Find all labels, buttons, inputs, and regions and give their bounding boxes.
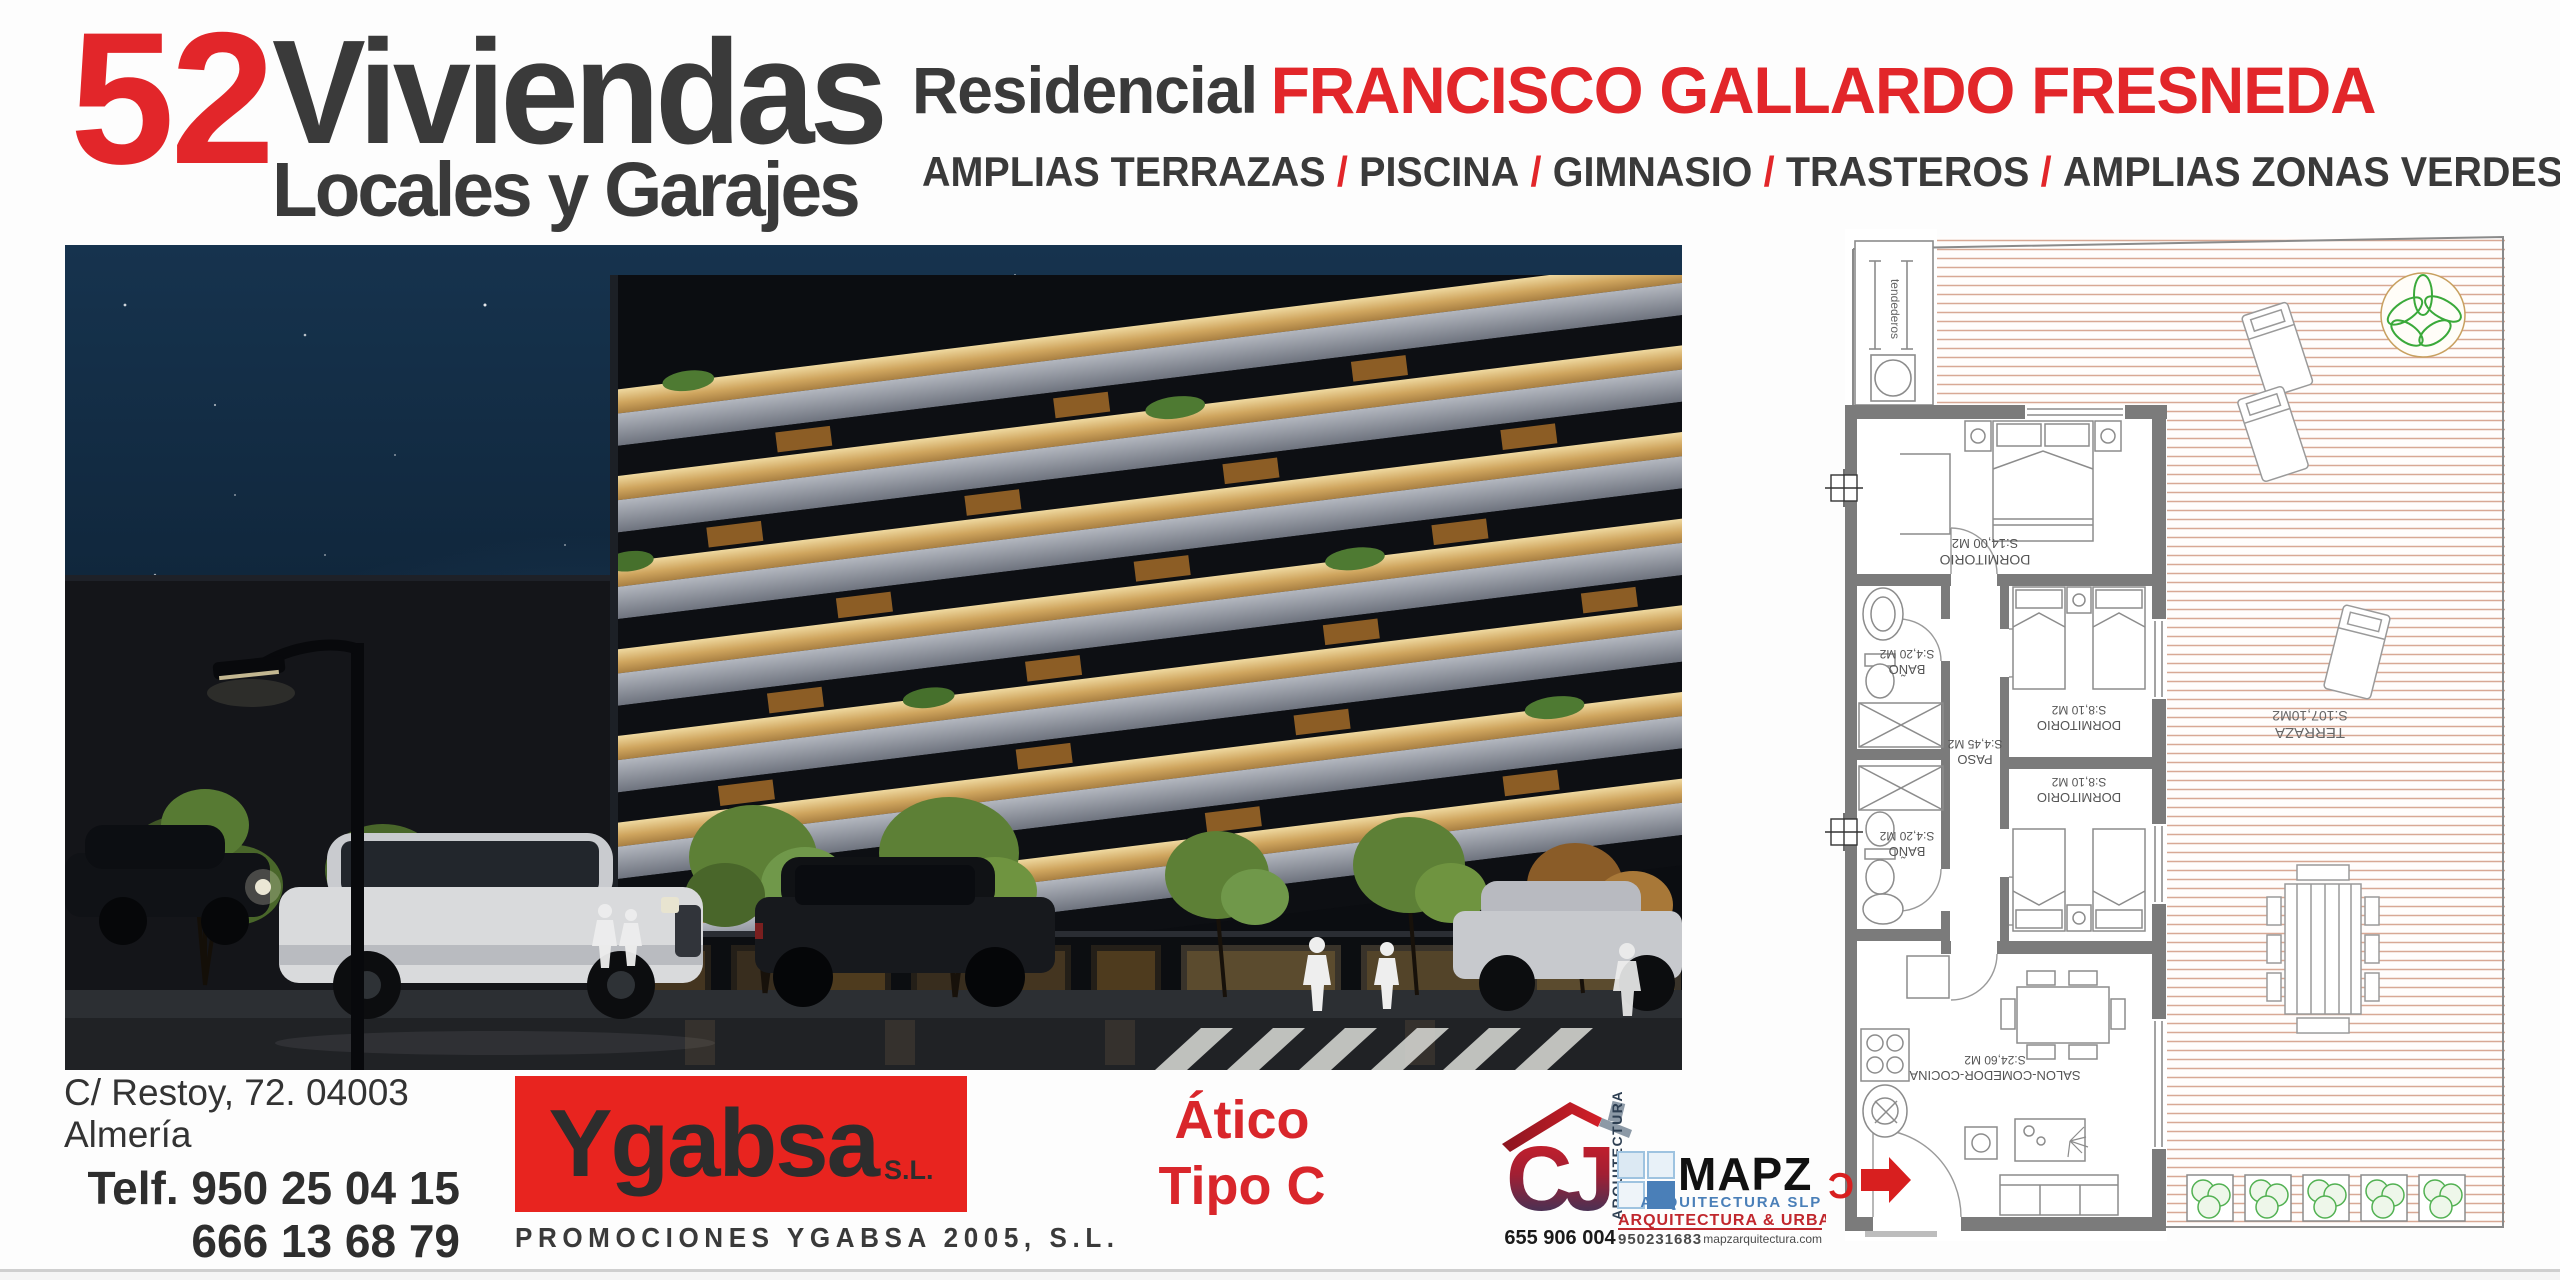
svg-text:S:8,10 M2: S:8,10 M2 [2051,703,2106,717]
feature-item: GIMNASIO [1553,148,1753,195]
cj-initials: CJ [1506,1128,1609,1230]
svg-text:SALON-COMEDOR-COCINA: SALON-COMEDOR-COCINA [1909,1068,2081,1083]
features-line: AMPLIAS TERRAZAS/PISCINA/GIMNASIO/TRASTE… [922,148,2560,196]
mapz-phone[interactable]: 950231683 [1618,1231,1702,1246]
svg-text:S:8,10 M2: S:8,10 M2 [2051,775,2106,789]
units-title: Viviendas [272,30,883,156]
svg-text:BAÑO: BAÑO [1889,662,1926,677]
unit-type-line1: Ático [1122,1088,1362,1154]
svg-text:TERRAZA: TERRAZA [2275,724,2345,741]
terrace-planters [2187,1175,2465,1221]
residencial-prefix: Residencial [912,53,1257,127]
mapz-logo: MAPZ ARQUITECTURA SLP ARQUITECTURA & URB… [1616,1150,1826,1246]
svg-text:BAÑO: BAÑO [1889,844,1926,859]
svg-text:S:14,00 M2: S:14,00 M2 [1952,536,2019,551]
ygabsa-logo: Ygabsa S.L. [515,1076,967,1212]
cj-phone[interactable]: 655 906 004 [1504,1227,1616,1249]
feature-item: TRASTEROS [1786,148,2029,195]
svg-text:S:24,60 M2: S:24,60 M2 [1964,1053,2026,1067]
svg-text:S:107,10M2: S:107,10M2 [2272,708,2348,724]
svg-text:DORMITORIO: DORMITORIO [2037,790,2121,805]
svg-text:DORMITORIO: DORMITORIO [1940,552,2031,568]
building-render [65,245,1682,1070]
contact-block: C/ Restoy, 72. 04003 Almería Telf. 950 2… [64,1072,460,1280]
phone-2[interactable]: 666 13 68 79 [64,1215,460,1268]
unit-type-label: Ático Tipo C [1122,1088,1362,1220]
address: C/ Restoy, 72. 04003 Almería [64,1072,460,1156]
svg-text:S:4,45 M2: S:4,45 M2 [1947,737,2002,751]
residencial-name: FRANCISCO GALLARDO FRESNEDA [1271,53,2376,127]
slash-separator: / [1531,148,1542,195]
label-terraza: TERRAZA S:107,10M2 [2272,708,2348,741]
ygabsa-tagline: PROMOCIONES YGABSA 2005, S.L. [515,1222,935,1254]
sidewalk [65,990,1682,1018]
units-number: 52 [70,16,271,181]
mapz-website[interactable]: mapzarquitectura.com [1703,1232,1822,1246]
svg-text:PASO: PASO [1957,752,1992,767]
label-tendederos: tendederos [1888,279,1902,339]
slash-separator: / [2041,148,2052,195]
feature-item: PISCINA [1359,148,1519,195]
svg-text:S:4,20 M2: S:4,20 M2 [1879,647,1934,661]
slash-separator: / [1337,148,1348,195]
feature-item: AMPLIAS ZONAS VERDES [2063,148,2560,195]
slash-separator: / [1764,148,1775,195]
units-subtitle: Locales y Garajes [272,146,858,235]
svg-text:DORMITORIO: DORMITORIO [2037,718,2121,733]
entry-type-label: C [1828,1165,1854,1206]
floorplan: tendederos [1825,229,2515,1241]
bottom-strip [0,1272,2560,1280]
mapz-subtitle: ARQUITECTURA SLP [1640,1194,1822,1211]
feature-item: AMPLIAS TERRAZAS [922,148,1326,195]
ygabsa-brand: Ygabsa [549,1096,878,1192]
unit-type-line2: Tipo C [1122,1154,1362,1220]
phone-1[interactable]: Telf. 950 25 04 15 [64,1162,460,1215]
mapz-name: MAPZ [1678,1150,1812,1200]
svg-text:S:4,20 M2: S:4,20 M2 [1879,829,1934,843]
residencial-title: ResidencialFRANCISCO GALLARDO FRESNEDA [912,52,2376,128]
ygabsa-suffix: S.L. [884,1155,934,1186]
mapz-tagline: ARQUITECTURA & URBANISMO [1618,1212,1826,1229]
billboard: 52 Viviendas Locales y Garajes Residenci… [0,0,2560,1280]
